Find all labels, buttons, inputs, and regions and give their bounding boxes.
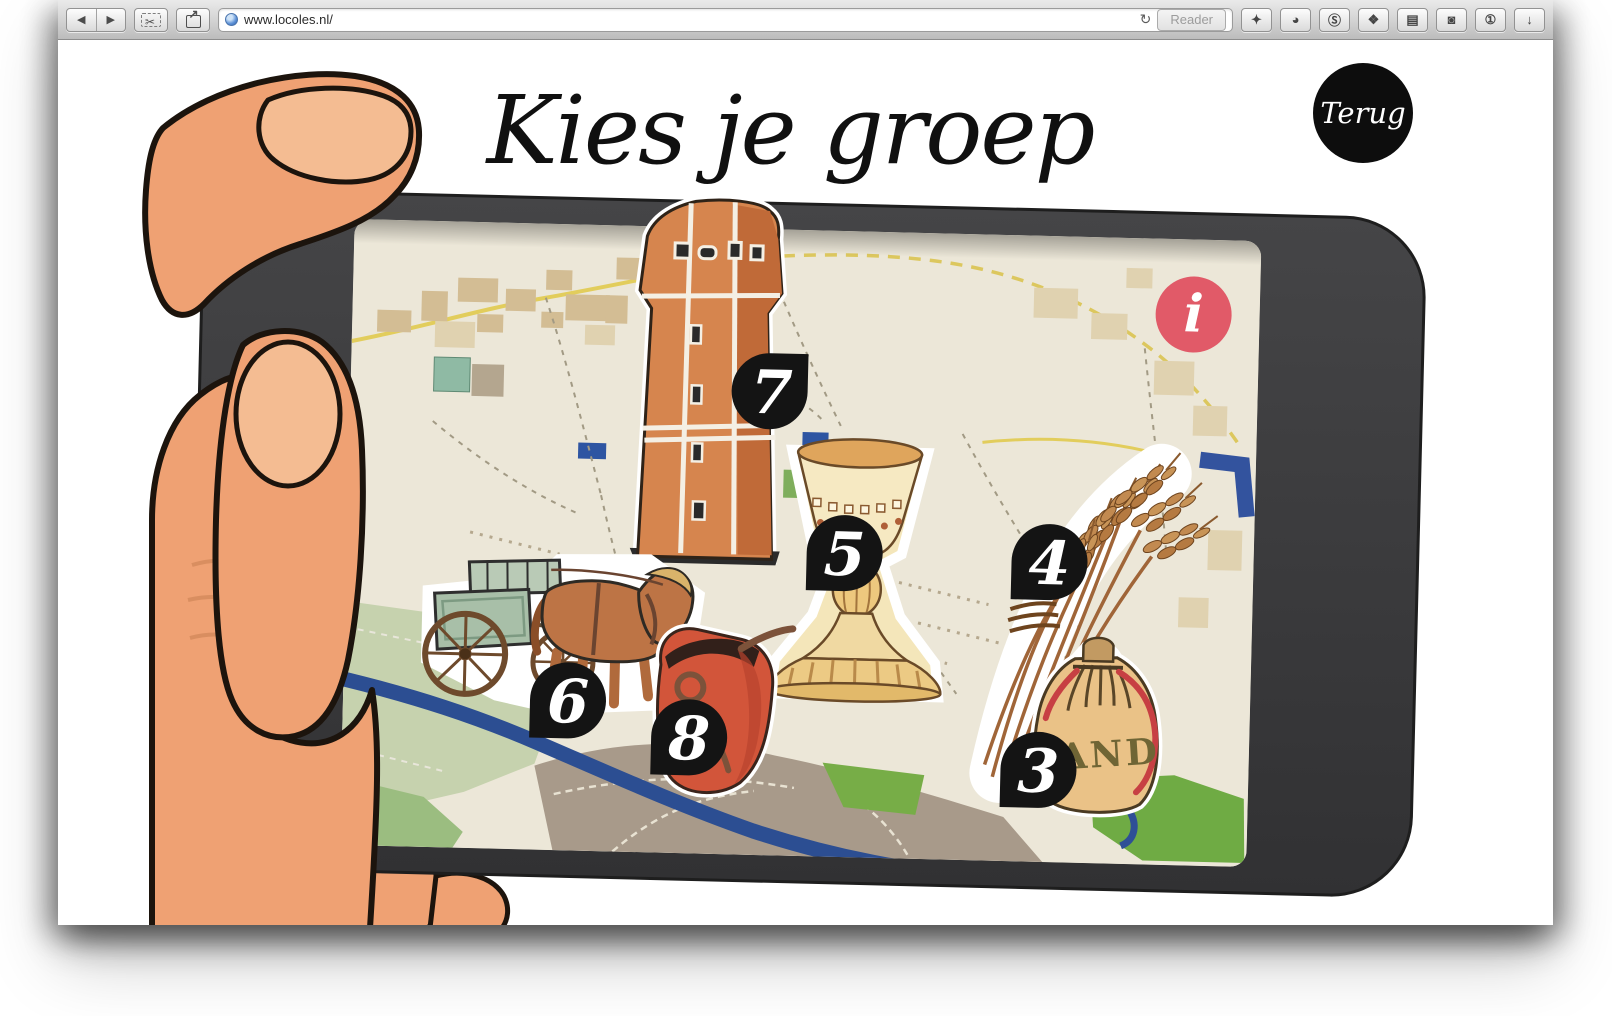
svg-text:4: 4 bbox=[1028, 529, 1071, 600]
extension-skype-button[interactable]: Ⓢ bbox=[1319, 8, 1350, 32]
svg-text:5: 5 bbox=[823, 520, 866, 591]
svg-text:7: 7 bbox=[750, 358, 794, 429]
svg-text:i: i bbox=[1183, 283, 1204, 344]
thumb-nail bbox=[236, 342, 340, 486]
svg-text:3: 3 bbox=[1017, 736, 1060, 807]
extension-downloads-button[interactable]: ↓ bbox=[1514, 8, 1545, 32]
refresh-icon[interactable]: ↻ bbox=[1140, 11, 1152, 28]
extension-record-button[interactable]: ◕ bbox=[1280, 8, 1311, 32]
extension-clipper-button[interactable]: ❖ bbox=[1358, 8, 1389, 32]
browser-window: ◀ ▶ ✂ ↗ www.locoles.nl/ ↻ Reader ✦ ◕ Ⓢ ❖… bbox=[58, 0, 1553, 925]
browser-toolbar: ◀ ▶ ✂ ↗ www.locoles.nl/ ↻ Reader ✦ ◕ Ⓢ ❖… bbox=[58, 0, 1553, 40]
extension-notebook-button[interactable]: ▤ bbox=[1397, 8, 1428, 32]
snip-icon: ✂ bbox=[141, 13, 161, 27]
back-link-button[interactable]: Terug bbox=[1313, 63, 1413, 163]
index-finger-nail bbox=[259, 88, 411, 182]
url-field[interactable]: www.locoles.nl/ ↻ Reader bbox=[218, 8, 1233, 32]
page-content: Kies je groep Terug bbox=[58, 40, 1553, 925]
nav-buttons: ◀ ▶ bbox=[66, 8, 126, 32]
share-icon: ↗ bbox=[186, 15, 201, 28]
forward-button[interactable]: ▶ bbox=[96, 9, 126, 31]
extension-info-button[interactable]: ① bbox=[1475, 8, 1506, 32]
snip-button[interactable]: ✂ bbox=[134, 8, 168, 32]
url-text[interactable]: www.locoles.nl/ bbox=[244, 12, 333, 27]
svg-text:6: 6 bbox=[546, 667, 589, 738]
back-link-label: Terug bbox=[1320, 96, 1405, 130]
svg-text:8: 8 bbox=[666, 704, 710, 775]
back-button[interactable]: ◀ bbox=[67, 9, 96, 31]
page-background: { "browser": { "url": "www.locoles.nl/",… bbox=[0, 0, 1612, 1016]
reader-button[interactable]: Reader bbox=[1157, 9, 1226, 31]
share-button[interactable]: ↗ bbox=[176, 8, 210, 32]
globe-icon bbox=[225, 13, 238, 26]
extension-shield-button[interactable]: ◙ bbox=[1436, 8, 1467, 32]
extension-dart-button[interactable]: ✦ bbox=[1241, 8, 1272, 32]
page-title: Kies je groep bbox=[487, 76, 1094, 186]
